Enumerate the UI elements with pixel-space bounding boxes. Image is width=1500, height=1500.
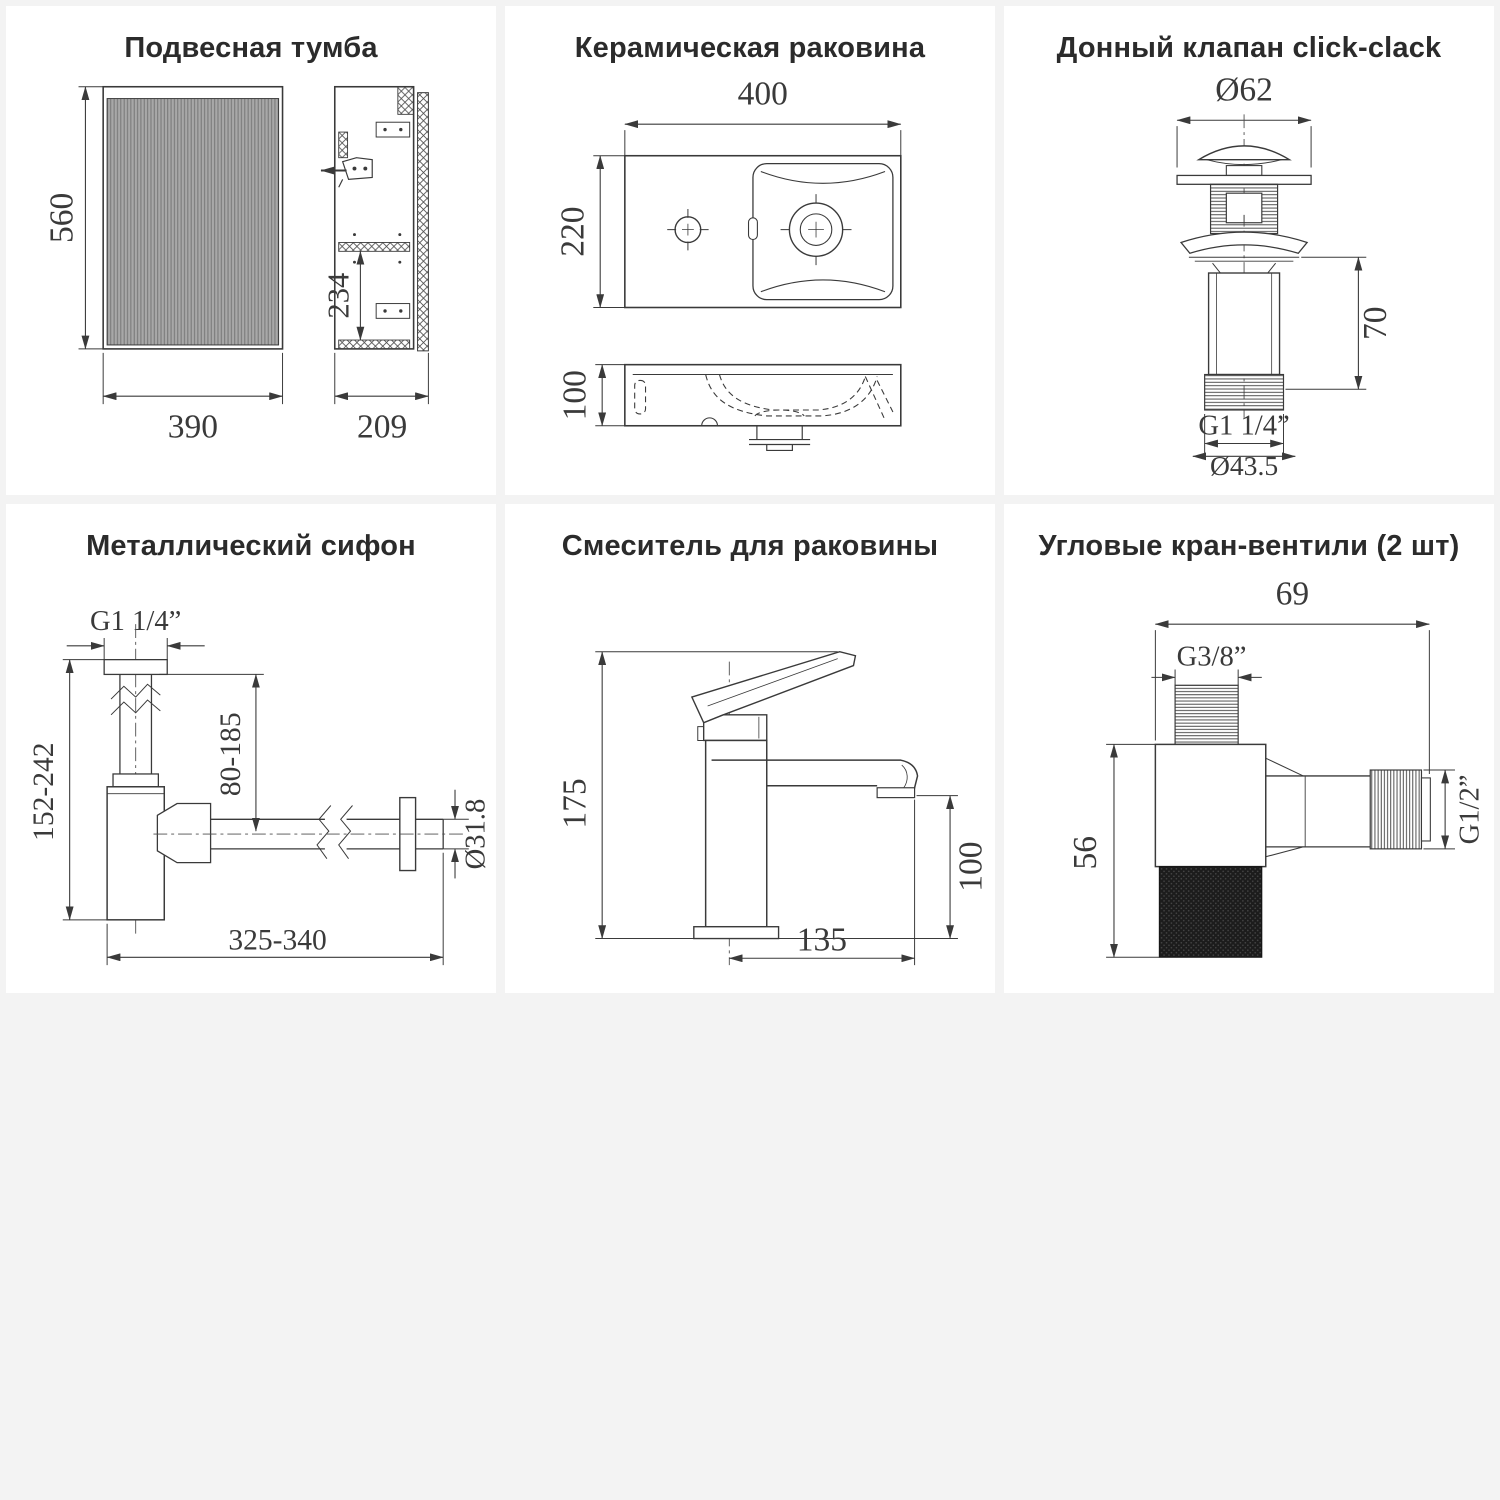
cabinet-shelf-label: 234 bbox=[322, 273, 356, 319]
valve-height-label: 70 bbox=[1357, 307, 1394, 341]
sink-dim-depth: 220 bbox=[554, 156, 624, 308]
lever-handle bbox=[692, 652, 856, 723]
siphon-body-drawing bbox=[104, 660, 465, 920]
panel-title-sink: Керамическая раковина bbox=[575, 31, 925, 65]
outlet-thread bbox=[1370, 770, 1421, 849]
panel-title-mixer: Смеситель для раковины bbox=[562, 529, 939, 563]
angle-valve-outlet-thread-label: G1/2” bbox=[1455, 775, 1486, 845]
drain-stub bbox=[749, 426, 810, 451]
cabinet-front-view bbox=[103, 87, 282, 349]
card-sink: Керамическая раковина 400 bbox=[505, 6, 995, 495]
valve-outlet-diameter-label: Ø43.5 bbox=[1210, 450, 1278, 478]
sink-top-view bbox=[625, 156, 901, 308]
valve-thread-dim: G1 1/4” bbox=[1198, 411, 1289, 454]
aerator bbox=[877, 788, 914, 798]
siphon-total-height-label: 152-242 bbox=[28, 742, 60, 840]
base-plate bbox=[694, 927, 779, 939]
sink-height-label: 100 bbox=[556, 370, 593, 420]
angle-valve-drawing: 69 G3/8” bbox=[1007, 567, 1491, 976]
valve-thread-label: G1 1/4” bbox=[1198, 411, 1289, 442]
mixer-height-label: 175 bbox=[556, 778, 593, 828]
cabinet-drawing: 560 390 234 209 bbox=[9, 69, 493, 478]
sink-dim-width: 400 bbox=[625, 75, 901, 155]
angle-valve-width-label: 69 bbox=[1276, 575, 1310, 612]
panel-title-angle-valve: Угловые кран-вентили (2 шт) bbox=[1038, 529, 1459, 563]
cabinet-dim-height: 560 bbox=[44, 87, 104, 349]
card-mixer: Смеситель для раковины bbox=[505, 504, 995, 993]
knurled-handle bbox=[1159, 867, 1261, 958]
siphon-inlet-height-label: 80-185 bbox=[215, 712, 247, 796]
angle-valve-dim-height: 56 bbox=[1067, 744, 1159, 957]
inlet-thread bbox=[1175, 685, 1238, 744]
card-siphon: Металлический сифон G1 1/4” bbox=[6, 504, 496, 993]
siphon-dim-total-height: 152-242 bbox=[28, 660, 107, 920]
angle-valve-inlet-dim: G3/8” bbox=[1151, 642, 1261, 686]
siphon-drawing: G1 1/4” bbox=[9, 567, 493, 976]
cabinet-width-label: 390 bbox=[168, 409, 218, 446]
sink-drawing: 400 bbox=[508, 69, 992, 478]
card-angle-valve: Угловые кран-вентили (2 шт) 69 bbox=[1004, 504, 1494, 993]
siphon-length-label: 325-340 bbox=[228, 924, 326, 956]
panel-title-drain-valve: Донный клапан click-clack bbox=[1057, 31, 1442, 65]
panel-title-cabinet: Подвесная тумба bbox=[124, 31, 377, 65]
card-drain-valve: Донный клапан click-clack Ø62 bbox=[1004, 6, 1494, 495]
mixer-body-drawing bbox=[692, 652, 918, 939]
sink-side-view bbox=[625, 365, 901, 451]
cabinet-height-label: 560 bbox=[44, 193, 81, 243]
sink-dim-height: 100 bbox=[556, 365, 624, 426]
mixer-spout-height-label: 100 bbox=[953, 841, 990, 891]
sink-depth-label: 220 bbox=[554, 206, 591, 256]
sink-width-label: 400 bbox=[738, 75, 788, 112]
panel-title-siphon: Металлический сифон bbox=[86, 529, 416, 563]
overflow-slot bbox=[749, 218, 758, 240]
valve-body-drawing bbox=[1177, 146, 1311, 410]
angle-valve-inlet-thread-label: G3/8” bbox=[1177, 642, 1247, 673]
valve-dim-height: 70 bbox=[1285, 257, 1394, 389]
mixer-drawing: 175 100 135 bbox=[508, 567, 992, 976]
card-cabinet: Подвесная тумба bbox=[6, 6, 496, 495]
cabinet-dim-depth: 209 bbox=[335, 353, 429, 446]
siphon-pipe-diameter-label: Ø31.8 bbox=[461, 799, 492, 870]
angle-valve-outlet-dim: G1/2” bbox=[1423, 770, 1485, 849]
angle-valve-body-drawing bbox=[1155, 685, 1430, 957]
spec-sheet: Подвесная тумба bbox=[0, 0, 1500, 999]
valve-dim-outlet: Ø43.5 bbox=[1193, 450, 1295, 478]
cabinet-depth-label: 209 bbox=[357, 409, 407, 446]
mixer-spout-reach-label: 135 bbox=[797, 921, 847, 958]
angle-valve-height-label: 56 bbox=[1067, 836, 1104, 870]
mixer-dim-spout-height: 100 bbox=[779, 796, 990, 939]
valve-cap-diameter-label: Ø62 bbox=[1215, 72, 1273, 109]
drain-valve-drawing: Ø62 bbox=[1007, 69, 1491, 478]
cabinet-dim-width: 390 bbox=[103, 353, 282, 446]
